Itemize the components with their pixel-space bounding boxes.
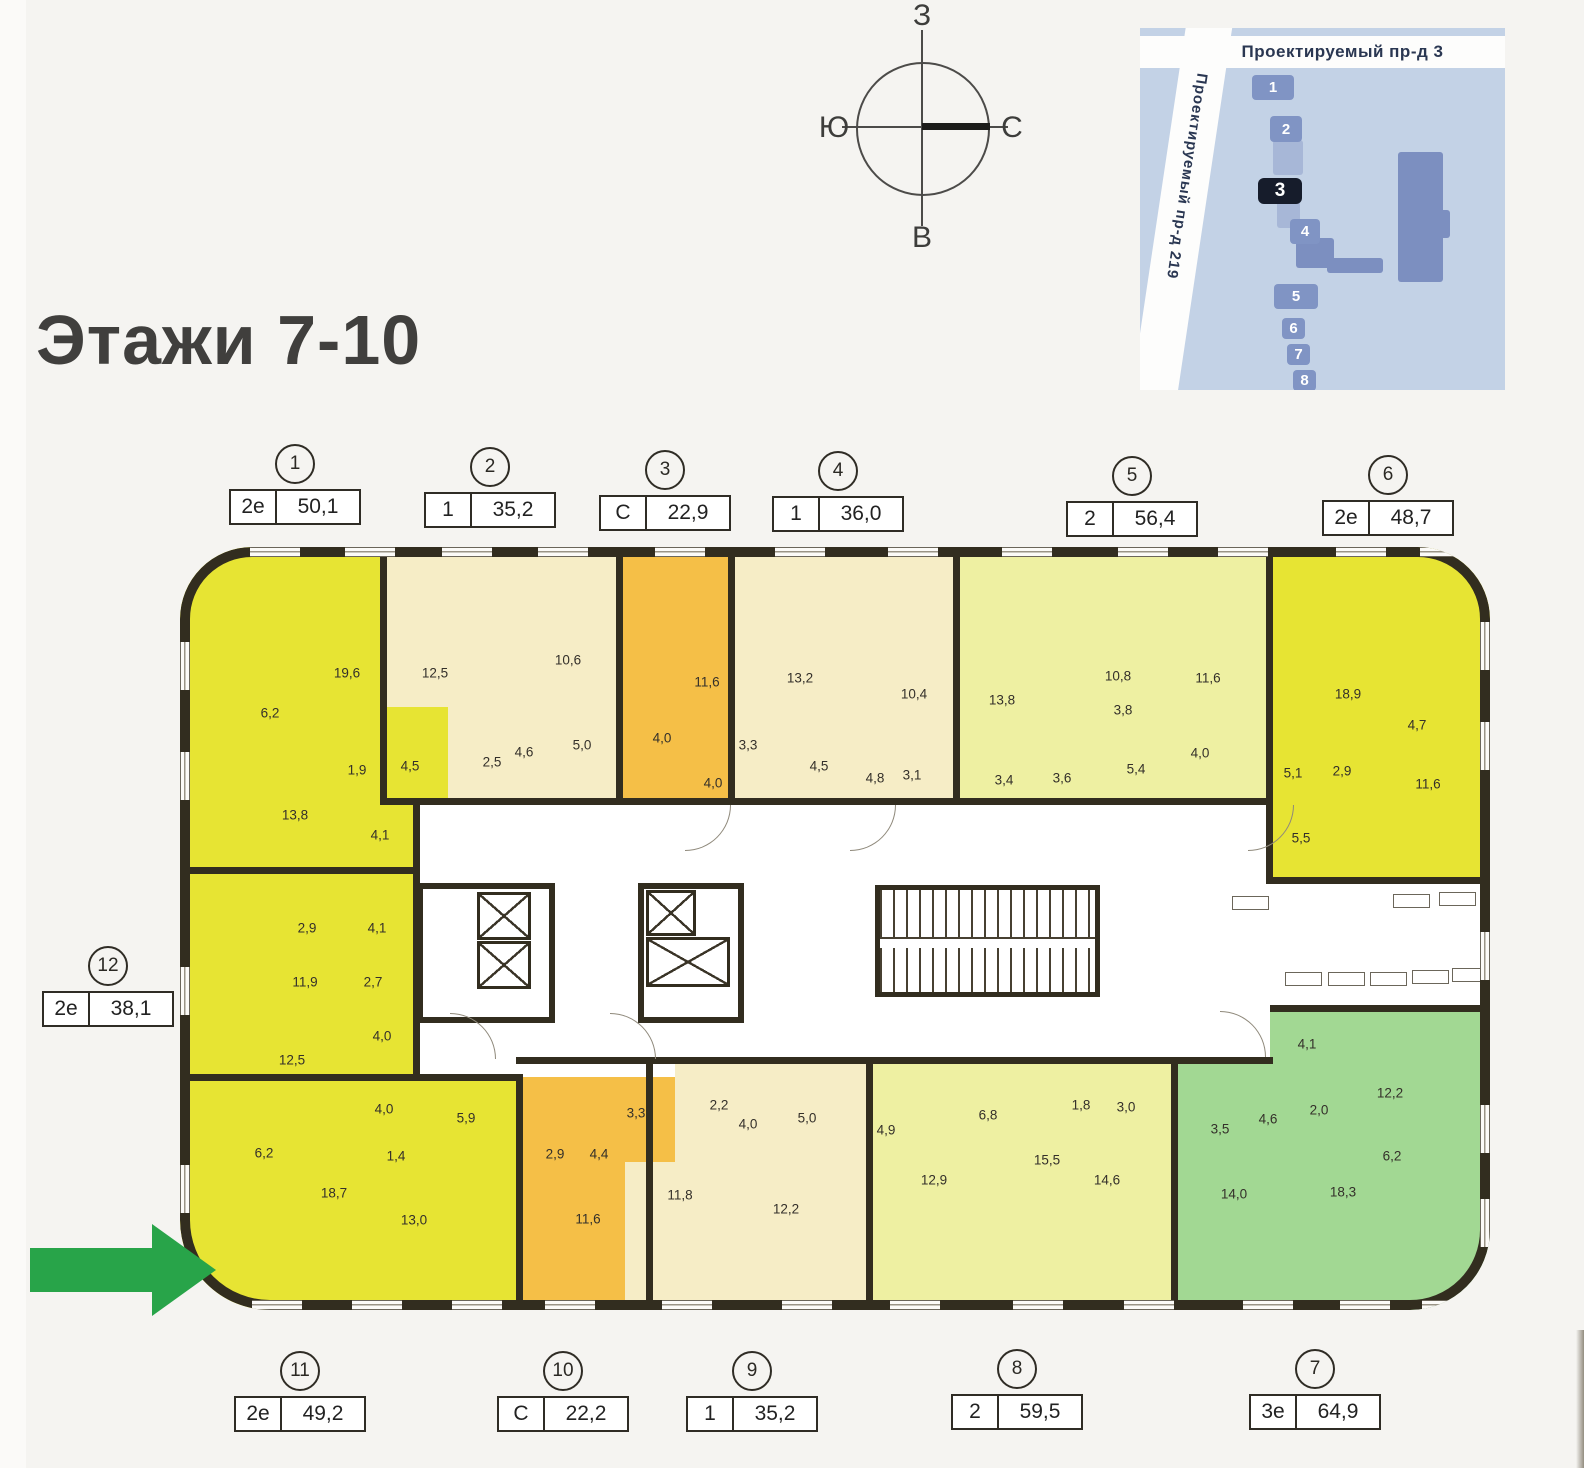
apartment-type: 2е [231, 491, 277, 523]
room-area-apt-7: 14,0 [1221, 1187, 1247, 1202]
apartment-label-11: 112е49,2 [234, 1351, 366, 1432]
apartment-type-area-box: 256,4 [1066, 501, 1198, 537]
window-icon [545, 1300, 595, 1310]
site-map-building-4: 4 [1290, 219, 1320, 244]
apartment-type: С [499, 1398, 545, 1430]
staircase-icon [875, 885, 1100, 997]
apartment-number: 4 [818, 451, 858, 491]
room-area-apt-9: 11,8 [667, 1188, 692, 1203]
apartment-type-area-box: 135,2 [424, 492, 556, 528]
room-area-apt-5: 11,6 [1195, 671, 1220, 686]
apartment-type-area-box: 259,5 [951, 1394, 1083, 1430]
apartment-type-area-box: С22,9 [599, 495, 731, 531]
window-icon [890, 1300, 940, 1310]
room-area-apt-11: 4,0 [375, 1102, 394, 1117]
room-area-apt-6: 18,9 [1335, 687, 1361, 702]
room-area-apt-5: 3,4 [995, 773, 1014, 788]
convector-icon [1285, 972, 1322, 986]
window-icon [452, 1300, 502, 1310]
convector-icon [1232, 896, 1269, 910]
room-area-apt-7: 12,2 [1377, 1086, 1403, 1101]
room-area-apt-11: 1,4 [387, 1149, 406, 1164]
room-area-apt-1: 6,2 [261, 706, 280, 721]
site-map: Проектируемый пр-д 3 Проектируемый пр-д … [1140, 28, 1505, 390]
apartment-type-area-box: 2е50,1 [229, 489, 361, 525]
scan-edge-left [0, 0, 26, 1468]
apartment-area: 50,1 [277, 491, 359, 523]
region-apt-4 [730, 547, 955, 802]
room-area-apt-2: 10,6 [555, 653, 581, 668]
room-area-apt-7: 4,6 [1259, 1112, 1278, 1127]
room-area-apt-12: 12,5 [279, 1053, 305, 1068]
window-icon [1480, 622, 1490, 670]
window-icon [1218, 547, 1268, 557]
window-icon [352, 1300, 402, 1310]
apartment-number: 3 [645, 450, 685, 490]
apartment-number: 8 [997, 1349, 1037, 1389]
apartment-area: 64,9 [1297, 1396, 1379, 1428]
window-icon [1480, 1105, 1490, 1153]
site-map-footprint [1398, 152, 1443, 282]
window-icon [180, 967, 190, 1015]
window-icon [538, 547, 588, 557]
room-area-apt-3: 3,3 [739, 738, 758, 753]
room-area-apt-1: 4,1 [371, 828, 390, 843]
room-area-apt-5: 5,4 [1127, 762, 1146, 777]
room-area-apt-2: 4,6 [515, 745, 534, 760]
window-icon [775, 547, 825, 557]
compass-north-pointer [922, 123, 990, 130]
room-area-apt-2: 5,0 [573, 738, 592, 753]
convector-icon [1393, 894, 1430, 908]
room-area-apt-4: 4,8 [866, 771, 885, 786]
convector-icon [1328, 972, 1365, 986]
room-area-apt-5: 13,8 [989, 693, 1015, 708]
elevator-shaft-icon [477, 892, 531, 940]
window-icon [252, 1300, 302, 1310]
window-icon [250, 547, 300, 557]
apartment-label-4: 4136,0 [772, 451, 904, 532]
apartment-type-area-box: 2е49,2 [234, 1396, 366, 1432]
site-map-footprint [1327, 258, 1383, 273]
room-area-apt-8: 15,5 [1034, 1153, 1060, 1168]
room-area-apt-3: 4,0 [653, 731, 672, 746]
compass-label-east: В [912, 221, 932, 255]
site-map-building-8: 8 [1293, 370, 1316, 390]
room-area-apt-8: 1,8 [1072, 1098, 1091, 1113]
window-icon [1340, 1300, 1390, 1310]
apartment-label-5: 5256,4 [1066, 456, 1198, 537]
room-area-apt-4: 3,1 [903, 768, 922, 783]
street-side: Проектируемый пр-д 219 [1140, 28, 1234, 390]
window-icon [1243, 1300, 1293, 1310]
window-icon [1124, 1300, 1174, 1310]
apartment-area: 22,9 [647, 497, 729, 529]
apartment-area: 36,0 [820, 498, 902, 530]
room-area-apt-9: 5,0 [798, 1111, 817, 1126]
apartment-type: 1 [688, 1398, 734, 1430]
room-area-apt-11: 6,2 [255, 1146, 274, 1161]
apartment-label-12: 122е38,1 [42, 946, 174, 1027]
apartment-area: 59,5 [999, 1396, 1081, 1428]
window-icon [662, 1300, 712, 1310]
apartment-type: 3е [1251, 1396, 1297, 1428]
window-icon [180, 642, 190, 690]
room-area-apt-9: 4,0 [739, 1117, 758, 1132]
room-area-apt-3: 4,0 [704, 776, 723, 791]
site-map-building-5: 5 [1274, 284, 1318, 309]
room-area-apt-7: 3,5 [1211, 1122, 1230, 1137]
apartment-type: 1 [426, 494, 472, 526]
room-area-apt-9: 2,2 [710, 1098, 729, 1113]
apartment-number: 1 [275, 444, 315, 484]
compass-label-north: С [1001, 111, 1023, 145]
room-area-apt-8: 4,9 [877, 1123, 896, 1138]
window-icon [1480, 932, 1490, 980]
apartment-type-area-box: С22,2 [497, 1396, 629, 1432]
room-area-apt-12: 4,1 [368, 921, 387, 936]
room-area-apt-8: 12,9 [921, 1173, 947, 1188]
scanned-floorplan-page: Этажи 7-10 З С В Ю Проектируемый пр-д 3 … [0, 0, 1584, 1468]
room-area-apt-1: 4,5 [401, 759, 420, 774]
window-icon [1013, 1300, 1063, 1310]
scan-edge-right [1576, 1330, 1584, 1468]
window-icon [888, 547, 938, 557]
room-area-apt-1: 1,9 [348, 763, 367, 778]
apartment-type: 1 [774, 498, 820, 530]
room-area-apt-11: 5,9 [457, 1111, 476, 1126]
elevator-shaft-icon [646, 890, 696, 936]
apartment-number: 7 [1295, 1349, 1335, 1389]
apartment-label-2: 2135,2 [424, 447, 556, 528]
room-area-apt-2: 12,5 [422, 666, 448, 681]
compass: З С В Ю [820, 0, 1040, 250]
apartment-label-3: 3С22,9 [599, 450, 731, 531]
apartment-type-area-box: 136,0 [772, 496, 904, 532]
apartment-area: 49,2 [282, 1398, 364, 1430]
apartment-area: 35,2 [472, 494, 554, 526]
apartment-label-6: 62е48,7 [1322, 455, 1454, 536]
room-area-apt-10: 4,4 [590, 1147, 609, 1162]
site-map-building-6: 6 [1282, 318, 1305, 339]
site-map-building-1: 1 [1252, 75, 1294, 100]
room-area-apt-7: 4,1 [1298, 1037, 1317, 1052]
room-area-apt-5: 3,6 [1053, 771, 1072, 786]
room-area-apt-7: 2,0 [1310, 1103, 1329, 1118]
convector-icon [1370, 972, 1407, 986]
room-area-apt-12: 11,9 [292, 975, 317, 990]
street-side-label: Проектируемый пр-д 219 [1140, 72, 1211, 390]
room-area-apt-6: 11,6 [1415, 777, 1440, 792]
apartment-label-9: 9135,2 [686, 1351, 818, 1432]
site-map-footprint [1440, 210, 1450, 238]
room-area-apt-6: 2,9 [1333, 764, 1352, 779]
room-area-apt-8: 6,8 [979, 1108, 998, 1123]
room-area-apt-9: 12,2 [773, 1202, 799, 1217]
room-area-apt-1: 13,8 [282, 808, 308, 823]
apartment-number: 9 [732, 1351, 772, 1391]
apartment-number: 5 [1112, 456, 1152, 496]
room-area-apt-5: 3,8 [1114, 703, 1133, 718]
apartment-area: 38,1 [90, 993, 172, 1025]
site-map-footprint [1273, 140, 1303, 175]
room-area-apt-12: 4,0 [373, 1029, 392, 1044]
apartment-type: 2е [1324, 502, 1370, 534]
apartment-type: 2 [953, 1396, 999, 1428]
room-area-apt-6: 5,5 [1292, 831, 1311, 846]
compass-label-south: Ю [819, 111, 849, 145]
room-area-apt-6: 5,1 [1284, 766, 1303, 781]
apartment-type: 2е [236, 1398, 282, 1430]
room-area-apt-2: 2,5 [483, 755, 502, 770]
floor-plan: 19,66,21,94,513,84,112,510,62,54,65,011,… [180, 547, 1490, 1310]
apartment-number: 6 [1368, 455, 1408, 495]
site-map-building-7: 7 [1287, 344, 1310, 365]
apartment-label-7: 73е64,9 [1249, 1349, 1381, 1430]
apartment-type-area-box: 2е48,7 [1322, 500, 1454, 536]
window-icon [1480, 1199, 1490, 1247]
window-icon [180, 1165, 190, 1213]
room-area-apt-4: 10,4 [901, 687, 927, 702]
room-area-apt-4: 13,2 [787, 671, 813, 686]
window-icon [1336, 547, 1386, 557]
page-title: Этажи 7-10 [36, 300, 421, 380]
apartment-number: 11 [280, 1351, 320, 1391]
apartment-type-area-box: 3е64,9 [1249, 1394, 1381, 1430]
apartment-type-area-box: 135,2 [686, 1396, 818, 1432]
apartment-number: 2 [470, 447, 510, 487]
apartment-area: 56,4 [1114, 503, 1196, 535]
window-icon [1420, 547, 1470, 557]
room-area-apt-10: 3,3 [627, 1106, 646, 1121]
room-area-apt-11: 13,0 [401, 1213, 427, 1228]
room-area-apt-8: 14,6 [1094, 1173, 1120, 1188]
room-area-apt-3: 11,6 [694, 675, 719, 690]
room-area-apt-11: 18,7 [321, 1186, 347, 1201]
room-area-apt-12: 2,7 [364, 975, 383, 990]
window-icon [655, 547, 705, 557]
apartment-area: 48,7 [1370, 502, 1452, 534]
room-area-apt-5: 10,8 [1105, 669, 1131, 684]
room-area-apt-5: 4,0 [1191, 746, 1210, 761]
room-area-apt-6: 4,7 [1408, 718, 1427, 733]
apartment-type-area-box: 2е38,1 [42, 991, 174, 1027]
room-area-apt-4: 4,5 [810, 759, 829, 774]
window-icon [1480, 722, 1490, 770]
site-map-building-3-highlighted: 3 [1258, 178, 1302, 204]
compass-label-west: З [913, 0, 931, 33]
elevator-shaft-icon [646, 937, 730, 987]
window-icon [180, 752, 190, 800]
site-map-building-2: 2 [1270, 116, 1302, 142]
room-area-apt-1: 19,6 [334, 666, 360, 681]
room-area-apt-10: 2,9 [546, 1147, 565, 1162]
elevator-shaft-icon [477, 941, 531, 989]
apartment-type: С [601, 497, 647, 529]
window-icon [345, 547, 395, 557]
room-area-apt-7: 6,2 [1383, 1149, 1402, 1164]
window-icon [1422, 1300, 1472, 1310]
window-icon [782, 1300, 832, 1310]
apartment-area: 35,2 [734, 1398, 816, 1430]
convector-icon [1412, 970, 1449, 984]
room-area-apt-12: 2,9 [298, 921, 317, 936]
room-area-apt-8: 3,0 [1117, 1100, 1136, 1115]
apartment-number: 10 [543, 1351, 583, 1391]
apartment-label-10: 10С22,2 [497, 1351, 629, 1432]
apartment-area: 22,2 [545, 1398, 627, 1430]
window-icon [1118, 547, 1168, 557]
convector-icon [1439, 892, 1476, 906]
room-area-apt-10: 11,6 [575, 1212, 600, 1227]
apartment-type: 2 [1068, 503, 1114, 535]
street-top-label: Проектируемый пр-д 3 [1202, 42, 1444, 62]
apartment-number: 12 [88, 946, 128, 986]
location-arrow-icon [30, 1224, 216, 1316]
window-icon [1002, 547, 1052, 557]
room-area-apt-7: 18,3 [1330, 1185, 1356, 1200]
window-icon [442, 547, 492, 557]
apartment-type: 2е [44, 993, 90, 1025]
apartment-label-8: 8259,5 [951, 1349, 1083, 1430]
apartment-label-1: 12е50,1 [229, 444, 361, 525]
